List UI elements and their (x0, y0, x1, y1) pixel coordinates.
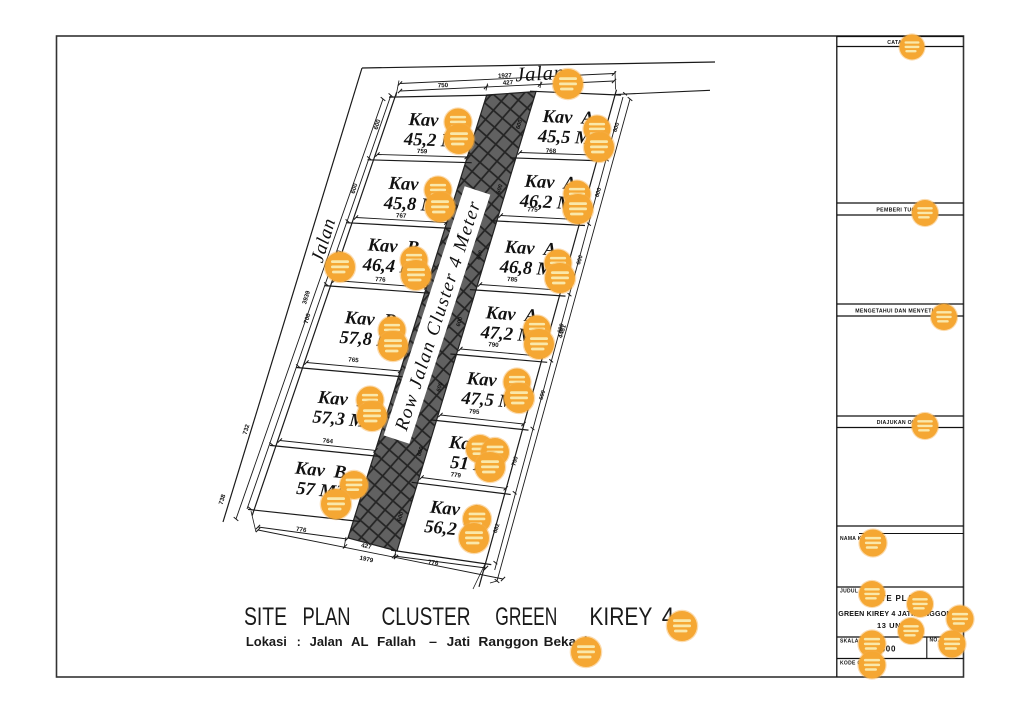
svg-text:Jalan: Jalan (310, 635, 343, 649)
svg-text:CLUSTER: CLUSTER (382, 603, 471, 631)
svg-text:–: – (429, 635, 437, 649)
svg-text:KIREY: KIREY (589, 603, 652, 631)
svg-text:SITE: SITE (244, 603, 287, 631)
svg-text:764: 764 (322, 437, 334, 445)
svg-text::: : (297, 635, 301, 649)
svg-text:765: 765 (348, 356, 359, 364)
svg-text:GREEN KIREY 4 JATIRANGGON: GREEN KIREY 4 JATIRANGGON (838, 610, 952, 618)
svg-text:GREEN: GREEN (495, 603, 557, 631)
svg-text:768: 768 (546, 148, 557, 155)
svg-text:PLAN: PLAN (303, 603, 351, 631)
svg-text:AL: AL (351, 635, 369, 649)
svg-text:776: 776 (296, 526, 308, 534)
svg-text:776: 776 (375, 276, 386, 284)
svg-text:Lokasi: Lokasi (246, 635, 287, 649)
svg-text:776: 776 (428, 559, 440, 567)
svg-text:750: 750 (438, 82, 449, 90)
svg-text:Ranggon: Ranggon (478, 635, 538, 649)
svg-text:427: 427 (503, 79, 514, 87)
svg-text:Fallah: Fallah (377, 635, 416, 649)
svg-text:Jati: Jati (447, 635, 471, 649)
